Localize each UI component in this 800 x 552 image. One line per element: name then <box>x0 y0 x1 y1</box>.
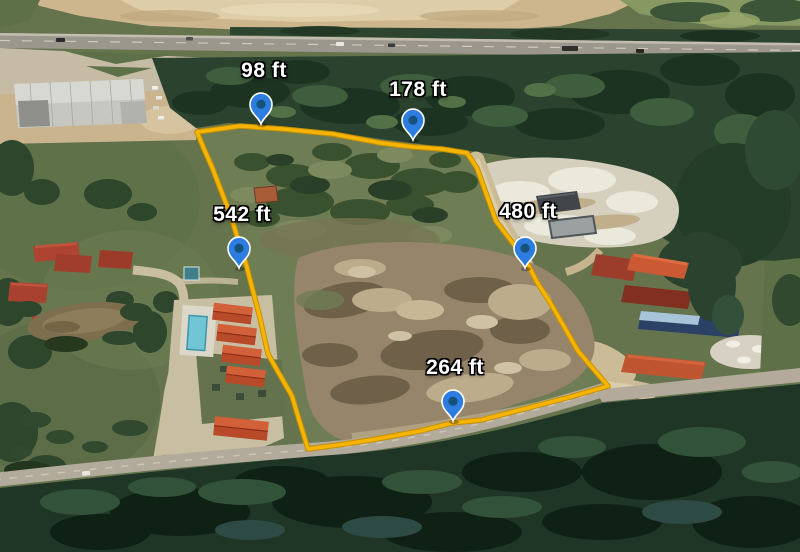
boundary-outline-edge <box>197 126 608 449</box>
property-boundary <box>197 126 608 449</box>
measurement-label-264ft: 264 ft <box>426 356 484 380</box>
map-viewport[interactable]: 98 ft 178 ft 542 ft 480 ft 264 ft <box>0 0 800 552</box>
measurement-pin-480ft[interactable] <box>514 237 536 271</box>
pin-center-dot <box>256 100 265 109</box>
measurement-pin-98ft[interactable] <box>250 93 272 127</box>
pin-center-dot <box>520 244 529 253</box>
measurement-label-480ft: 480 ft <box>499 200 557 224</box>
measurement-pin-178ft[interactable] <box>402 109 424 143</box>
pin-center-dot <box>234 244 243 253</box>
pin-center-dot <box>408 116 417 125</box>
measurement-pin-264ft[interactable] <box>442 390 464 424</box>
measurement-label-178ft: 178 ft <box>389 78 447 102</box>
measurement-label-542ft: 542 ft <box>213 203 271 227</box>
pin-center-dot <box>448 397 457 406</box>
measurement-label-98ft: 98 ft <box>241 59 287 83</box>
